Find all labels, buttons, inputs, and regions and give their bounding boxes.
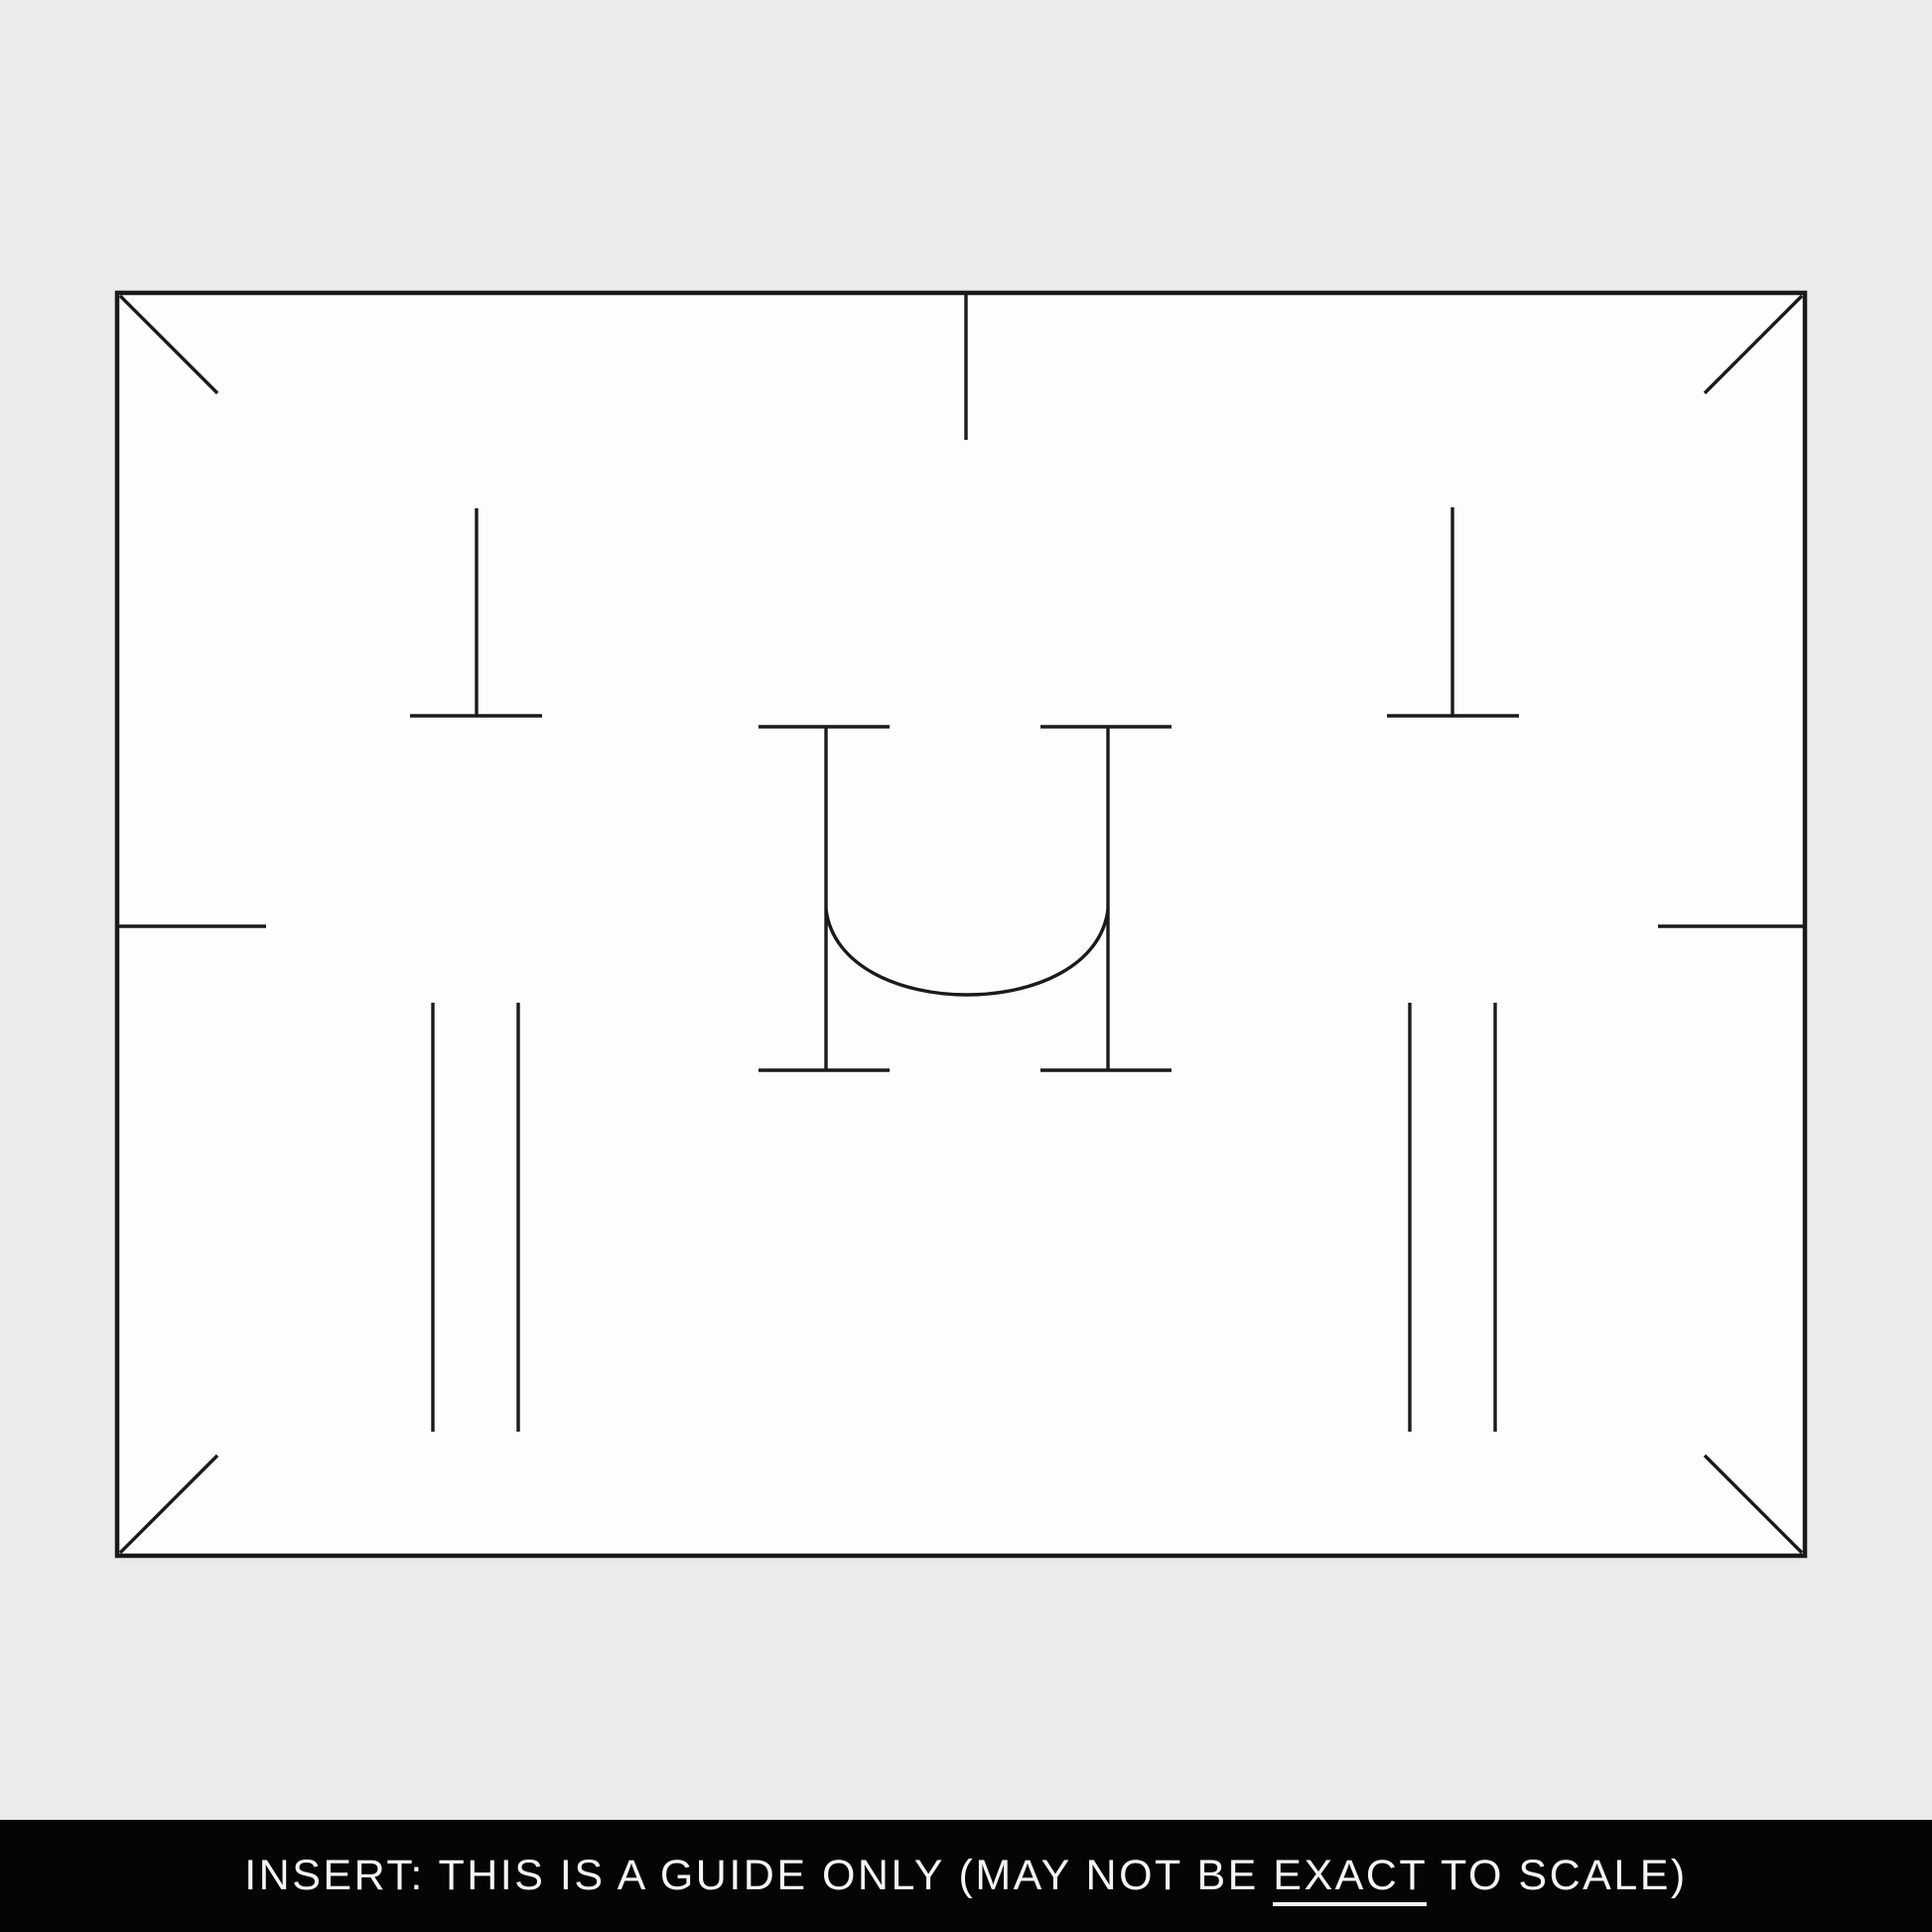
caption-text-prefix: INSERT: THIS IS A GUIDE ONLY (MAY NOT BE bbox=[244, 1852, 1273, 1899]
card-outline bbox=[117, 293, 1805, 1556]
caption-bar: INSERT: THIS IS A GUIDE ONLY (MAY NOT BE… bbox=[0, 1820, 1932, 1932]
caption-text-suffix: TO SCALE) bbox=[1427, 1852, 1687, 1899]
caption-text: INSERT: THIS IS A GUIDE ONLY (MAY NOT BE… bbox=[244, 1855, 1688, 1897]
insert-guide-diagram bbox=[0, 0, 1932, 1932]
caption-text-underlined-word: EXACT bbox=[1273, 1852, 1427, 1906]
insert-guide-page: INSERT: THIS IS A GUIDE ONLY (MAY NOT BE… bbox=[0, 0, 1932, 1932]
